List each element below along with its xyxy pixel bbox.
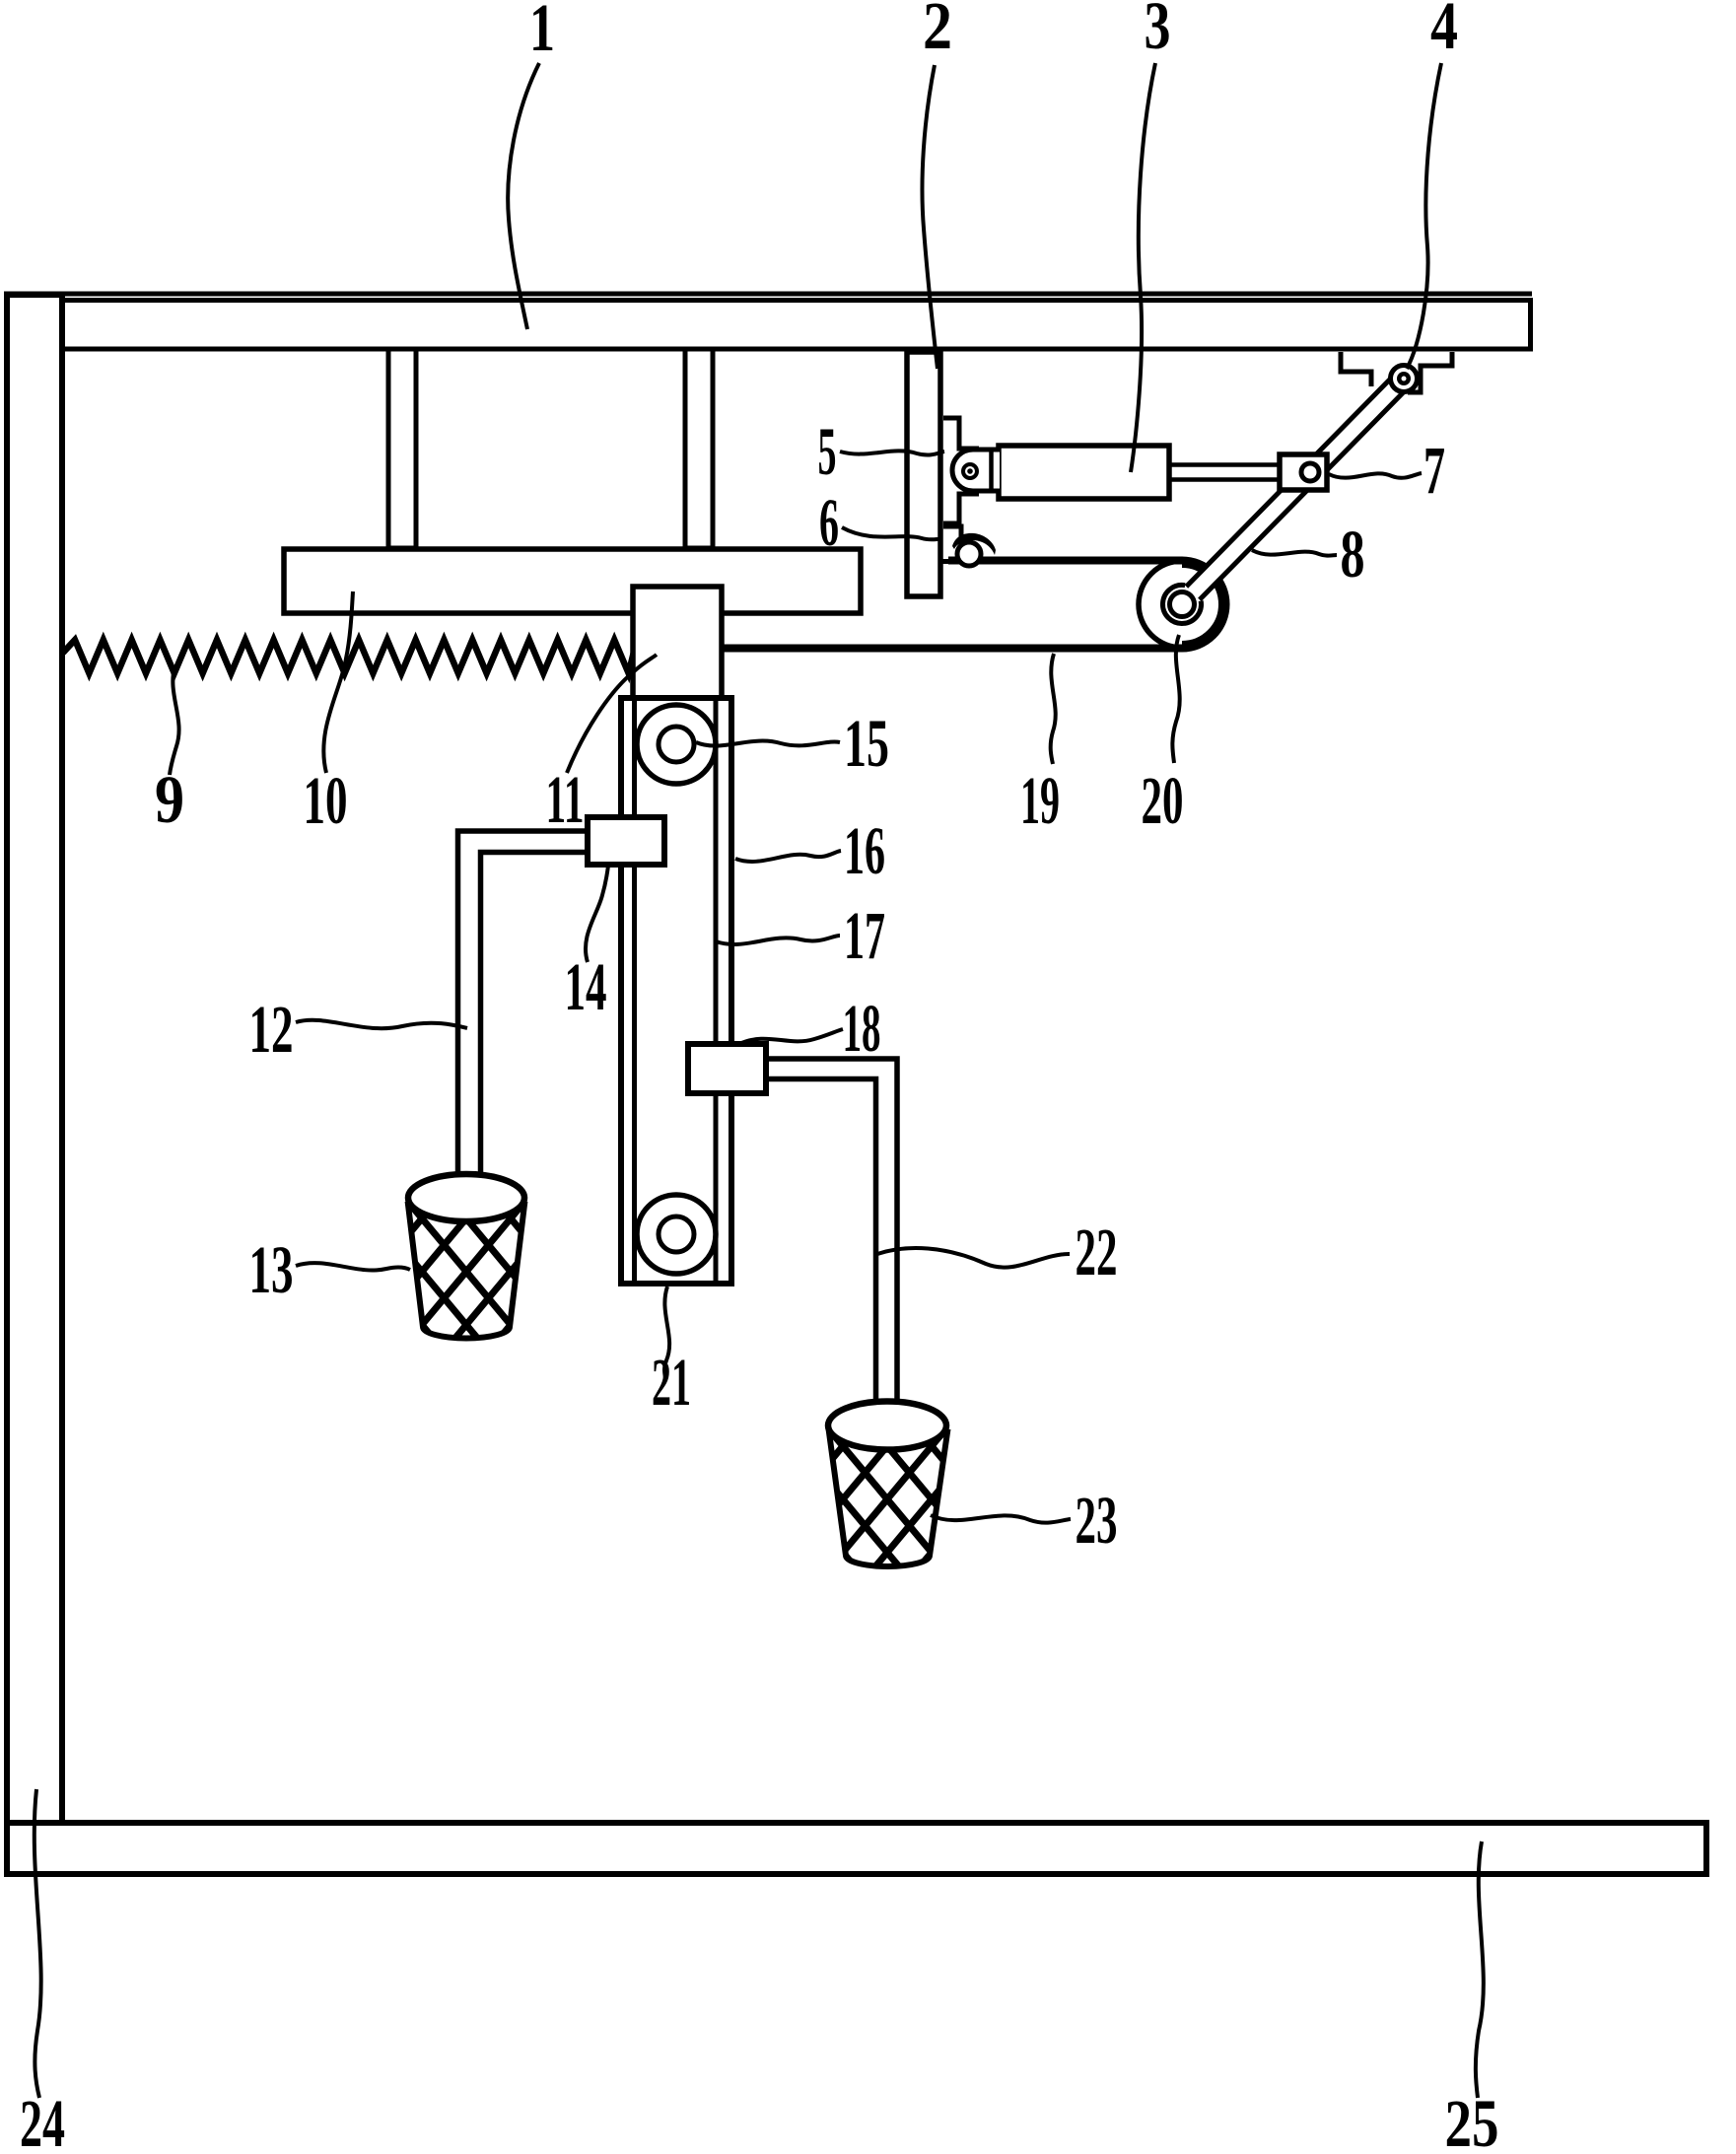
svg-text:21: 21 <box>652 1345 691 1420</box>
svg-text:2: 2 <box>923 0 952 63</box>
svg-text:10: 10 <box>304 763 348 838</box>
svg-text:6: 6 <box>819 485 839 560</box>
svg-text:11: 11 <box>546 762 585 837</box>
svg-text:5: 5 <box>818 414 837 489</box>
svg-text:19: 19 <box>1020 763 1060 838</box>
svg-text:3: 3 <box>1145 0 1171 63</box>
svg-text:16: 16 <box>844 813 885 888</box>
svg-text:13: 13 <box>249 1232 294 1307</box>
svg-text:22: 22 <box>1076 1215 1118 1289</box>
svg-text:8: 8 <box>1341 517 1365 591</box>
svg-text:14: 14 <box>565 949 607 1024</box>
svg-text:4: 4 <box>1430 0 1458 63</box>
svg-text:25: 25 <box>1445 2086 1499 2154</box>
svg-text:9: 9 <box>155 762 184 837</box>
svg-text:18: 18 <box>843 991 881 1066</box>
svg-text:23: 23 <box>1076 1483 1118 1558</box>
svg-text:1: 1 <box>529 0 555 65</box>
svg-text:7: 7 <box>1424 433 1445 508</box>
svg-text:24: 24 <box>20 2086 65 2154</box>
svg-text:17: 17 <box>844 898 885 973</box>
svg-text:15: 15 <box>844 706 889 781</box>
svg-text:12: 12 <box>249 992 294 1067</box>
svg-text:20: 20 <box>1142 763 1184 838</box>
